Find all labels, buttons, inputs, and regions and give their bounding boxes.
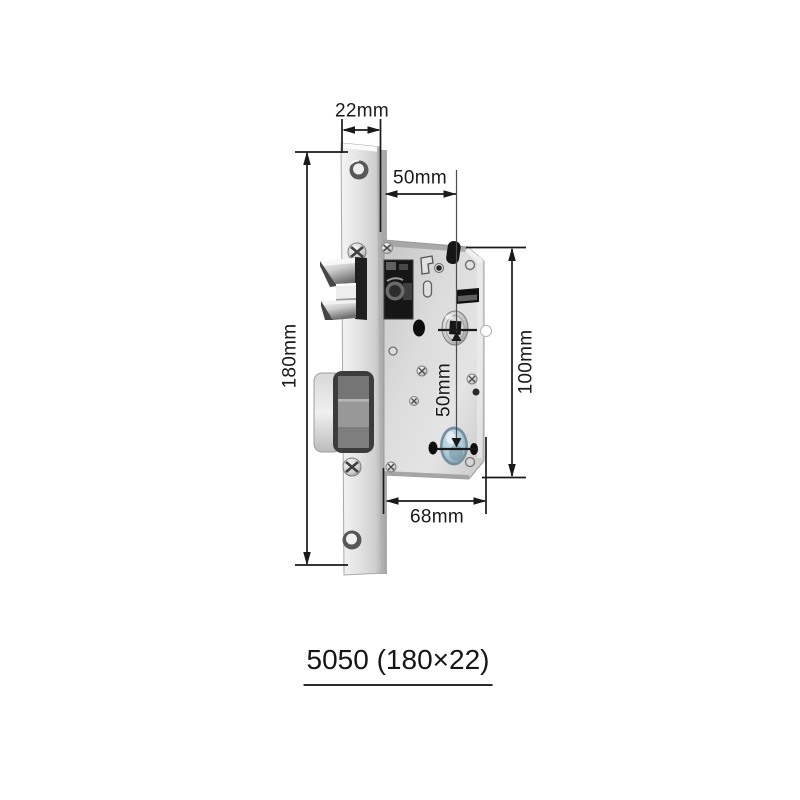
- dim-label-body-width: 68mm: [410, 508, 464, 527]
- small-hole-1: [435, 264, 444, 273]
- deadbolt: [314, 371, 374, 453]
- spindle-square-hole: [449, 321, 461, 335]
- dim-label-center-spacing: 50mm: [435, 363, 454, 417]
- oval-hole-cyl-left: [429, 442, 438, 455]
- small-hole-2: [466, 261, 475, 270]
- case-edge-notch: [481, 326, 492, 337]
- dim-label-backset: 50mm: [393, 169, 447, 188]
- case-screw-mid-right: [467, 374, 477, 384]
- small-hole-3: [389, 347, 397, 355]
- dim-faceplate-height: [295, 152, 348, 566]
- latch-mechanism-opening: [384, 260, 413, 319]
- small-dark-hole: [473, 389, 480, 396]
- dim-label-body-height: 100mm: [517, 330, 536, 395]
- caption-container: 5050 (180×22): [304, 644, 493, 686]
- small-hole-4: [466, 458, 475, 467]
- faceplate-screw-bottom: [343, 458, 361, 476]
- case-screw-bottom: [386, 462, 396, 472]
- case-screw-top: [382, 243, 393, 254]
- case-screw-mid-left: [417, 366, 427, 376]
- dim-label-faceplate-height: 180mm: [281, 324, 300, 389]
- dim-label-faceplate-width: 22mm: [335, 102, 389, 121]
- latch-bolt: [320, 257, 367, 320]
- model-caption: 5050 (180×22): [304, 644, 493, 686]
- oval-hole-left: [413, 320, 425, 337]
- rect-cutout: [456, 288, 479, 304]
- faceplate: [341, 143, 384, 575]
- small-slot: [424, 281, 432, 297]
- cylinder-hole: [440, 427, 468, 466]
- faceplate-hole-top: [350, 160, 369, 179]
- faceplate-hole-bottom: [343, 531, 362, 550]
- case-screw-lower: [410, 397, 419, 406]
- product-spec-image: 22mm 50mm 180mm 100mm 50mm 68mm 5050 (18…: [0, 0, 800, 800]
